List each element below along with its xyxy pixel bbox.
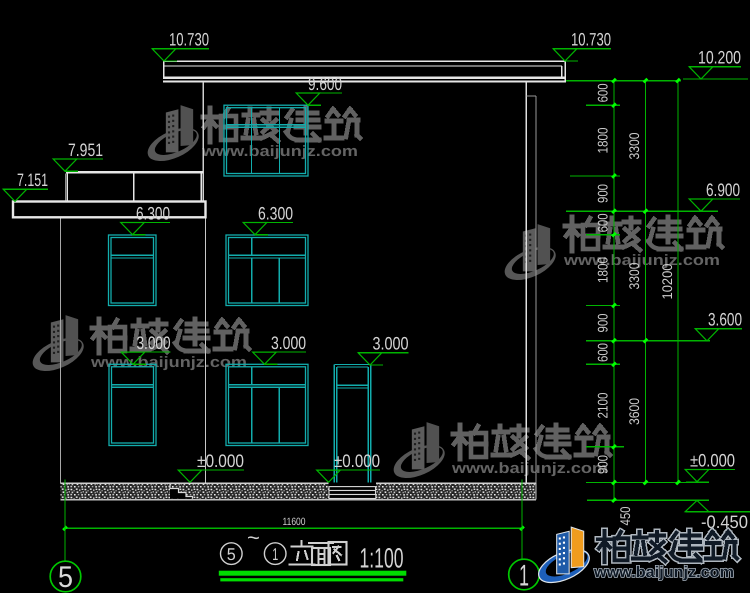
svg-text:1:100: 1:100 <box>360 543 404 574</box>
svg-text:11600: 11600 <box>283 516 306 528</box>
svg-text:3.000: 3.000 <box>271 333 306 353</box>
svg-text:900: 900 <box>595 313 611 332</box>
svg-text:7.151: 7.151 <box>17 170 48 190</box>
svg-text:6.300: 6.300 <box>136 203 170 223</box>
svg-text:5: 5 <box>58 561 73 593</box>
svg-text:5: 5 <box>227 545 236 564</box>
svg-text:±0.000: ±0.000 <box>690 450 735 470</box>
svg-text:900: 900 <box>595 455 611 474</box>
svg-text:3300: 3300 <box>626 262 642 289</box>
svg-text:7.951: 7.951 <box>68 140 103 160</box>
svg-text:±0.000: ±0.000 <box>334 451 380 471</box>
svg-text:2100: 2100 <box>595 392 611 418</box>
svg-text:1: 1 <box>272 545 278 564</box>
svg-text:1: 1 <box>519 560 529 593</box>
svg-text:www.baijunjz.com: www.baijunjz.com <box>90 354 247 371</box>
svg-text:3.000: 3.000 <box>373 334 409 354</box>
svg-text:6.300: 6.300 <box>258 203 293 223</box>
svg-text:-0.450: -0.450 <box>701 512 748 532</box>
svg-text:1800: 1800 <box>595 127 611 153</box>
svg-text:±0.000: ±0.000 <box>197 451 244 471</box>
svg-text:450: 450 <box>617 506 633 525</box>
svg-text:3300: 3300 <box>626 132 642 159</box>
svg-text:10.730: 10.730 <box>169 30 209 50</box>
svg-text:600: 600 <box>595 343 611 362</box>
svg-text:9.600: 9.600 <box>308 74 342 94</box>
svg-text:~: ~ <box>247 525 260 550</box>
svg-text:www.baijunjz.com: www.baijunjz.com <box>451 460 608 477</box>
svg-text:1800: 1800 <box>595 257 611 283</box>
svg-text:3.600: 3.600 <box>708 310 742 330</box>
svg-text:3.000: 3.000 <box>137 333 171 353</box>
svg-text:10.200: 10.200 <box>698 48 741 68</box>
svg-text:600: 600 <box>595 83 611 102</box>
svg-text:www.baijunjz.com: www.baijunjz.com <box>593 564 734 581</box>
svg-text:10200: 10200 <box>659 263 675 299</box>
svg-text:3600: 3600 <box>626 398 642 425</box>
svg-text:900: 900 <box>595 184 611 203</box>
svg-text:6.900: 6.900 <box>706 180 740 200</box>
svg-text:10.730: 10.730 <box>571 30 611 50</box>
svg-text:600: 600 <box>595 213 611 232</box>
